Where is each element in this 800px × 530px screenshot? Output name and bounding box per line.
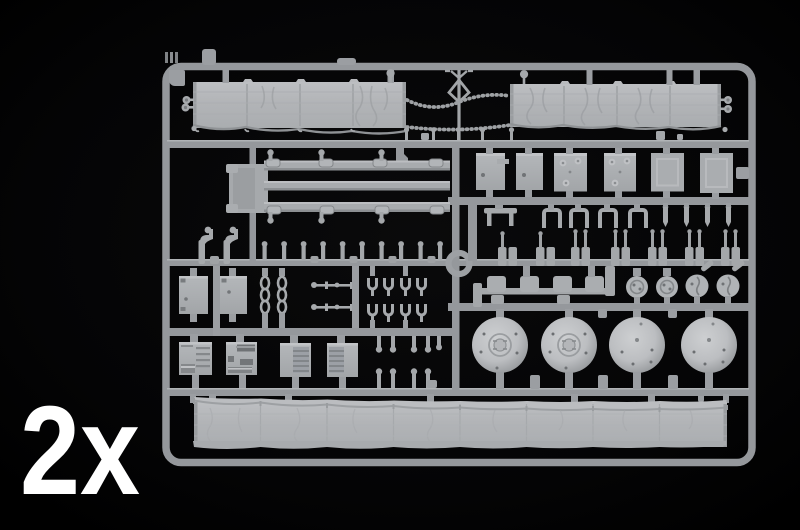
svg-text:2x: 2x <box>20 380 140 521</box>
